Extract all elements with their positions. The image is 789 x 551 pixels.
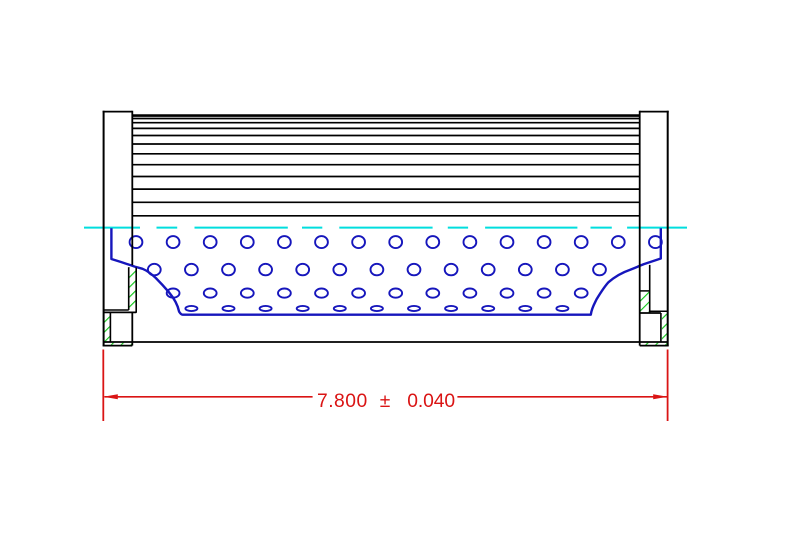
svg-text:±: ±	[380, 391, 391, 412]
svg-text:0.040: 0.040	[407, 391, 455, 412]
svg-text:7.800: 7.800	[317, 391, 367, 412]
